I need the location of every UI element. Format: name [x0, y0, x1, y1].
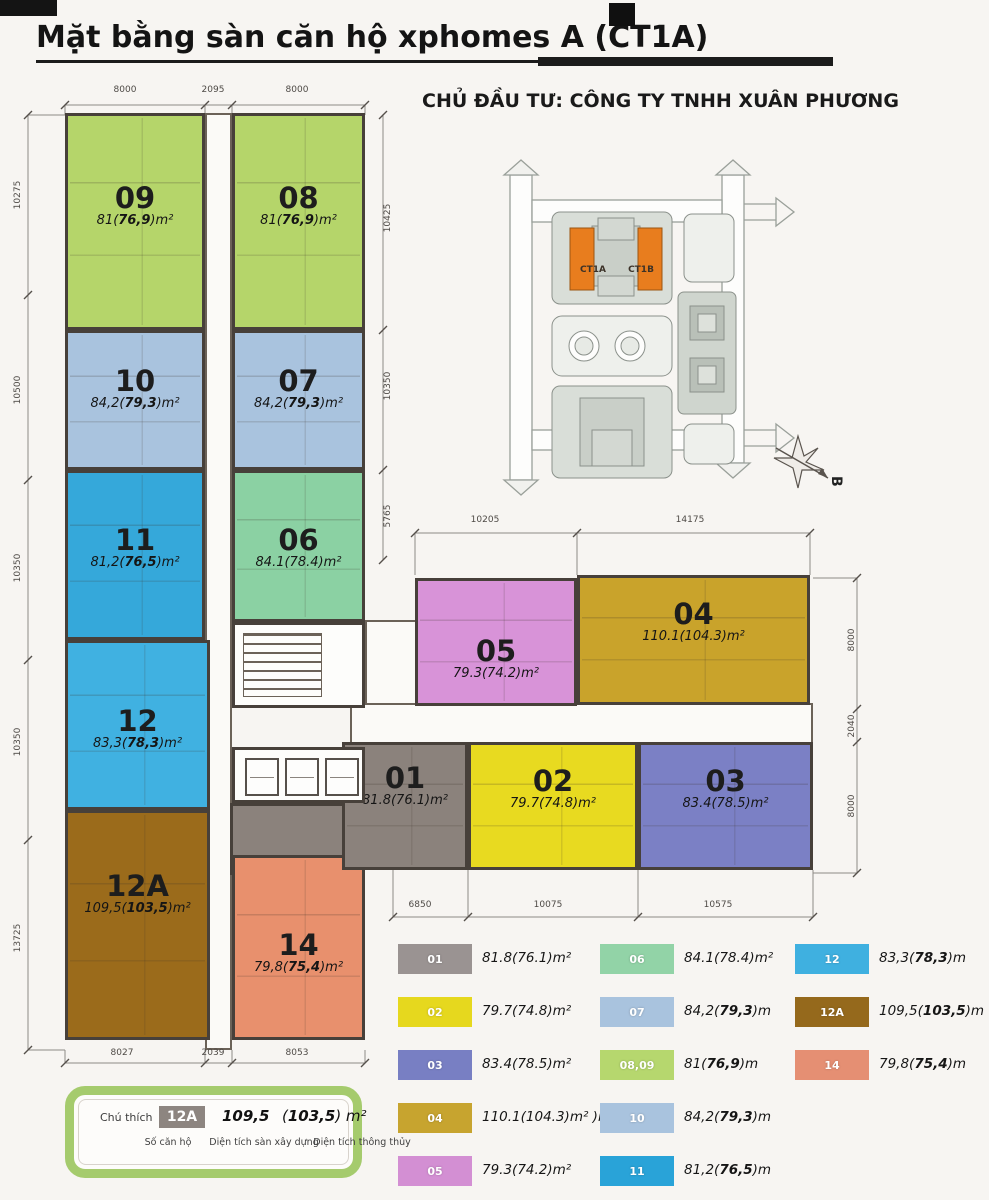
legend-swatch: 14 [795, 1050, 869, 1080]
apartment-number: 07 [235, 366, 362, 396]
site-plan: CT1A CT1B B [480, 130, 880, 510]
legend-suf: )m [948, 1056, 966, 1072]
area-pre: 79.7(74.8)m² [510, 796, 596, 811]
dimension-label: 10350 [383, 372, 393, 401]
apartment-label: 0981(76,9)m² [68, 183, 202, 228]
legend-net: 79,3 [719, 1003, 752, 1019]
note-caption-id: Số căn hộ [145, 1137, 192, 1148]
legend-pre: 110.1(104.3)m² )m² [482, 1109, 617, 1125]
dimension-label: 14175 [676, 515, 705, 525]
legend-pre: 79,8( [879, 1056, 914, 1072]
compass-north-label: B [828, 476, 844, 487]
apartment-10: 1084,2(79,3)m² [65, 330, 205, 470]
area-net: 76,9 [118, 213, 150, 228]
dimension-label: 10425 [383, 204, 393, 233]
legend-swatch: 04 [398, 1103, 472, 1133]
area-net: 78,3 [127, 736, 159, 751]
note-sample-swatch: 12A [159, 1106, 205, 1128]
apartment-04: 04110.1(104.3)m² [577, 575, 810, 705]
compass-north-icon [774, 436, 828, 488]
legend-pre: 83,3( [879, 950, 914, 966]
legend-swatch: 06 [600, 944, 674, 974]
floor-plan-page: Mặt bằng sàn căn hộ xphomes A (CT1A) CHỦ… [0, 0, 989, 1200]
note-caption-gross: Diện tích sàn xây dựng [209, 1137, 318, 1148]
dimension-label: 2095 [202, 85, 225, 95]
area-net: 103,5 [127, 901, 168, 916]
legend-label: 110.1(104.3)m² )m² [482, 1109, 617, 1125]
apartment-label: 12A109,5(103,5)m² [68, 871, 207, 916]
apartment-number: 12A [68, 871, 207, 901]
legend-net: 76,9 [706, 1056, 739, 1072]
legend-pre: 83.4(78.5)m² [482, 1056, 571, 1072]
apartment-number: 09 [68, 183, 202, 213]
apartment-label: 0684.1(78.4)m² [235, 525, 362, 570]
apartment-area: 110.1(104.3)m² [580, 629, 807, 644]
legend-label: 81.8(76.1)m² [482, 950, 571, 966]
apartment-area: 79.7(74.8)m² [471, 796, 635, 811]
legend-suf: )m [753, 1003, 771, 1019]
note-sample-gross: 109,5 [222, 1107, 269, 1125]
area-pre: 109,5( [84, 901, 126, 916]
area-pre: 81( [97, 213, 119, 228]
legend-pre: 81( [684, 1056, 706, 1072]
dimension-label: 8000 [847, 795, 857, 818]
legend-net: 75,4 [914, 1056, 947, 1072]
legend-swatch: 12 [795, 944, 869, 974]
legend-net: 78,3 [914, 950, 947, 966]
area-suf: )m² [320, 396, 343, 411]
area-suf: )m² [168, 901, 191, 916]
apartment-label: 0784,2(79,3)m² [235, 366, 362, 411]
legend-label: 84.1(78.4)m² [684, 950, 773, 966]
apartment-number: 08 [235, 183, 362, 213]
dimension-label: 10075 [534, 900, 563, 910]
dimension-label: 10350 [13, 554, 23, 583]
area-pre: 81.8(76.1)m² [362, 793, 448, 808]
apartment-number: 05 [418, 636, 574, 666]
area-net: 76,5 [125, 555, 157, 570]
area-suf: )m² [320, 960, 343, 975]
plan-block-stair-core [232, 622, 365, 708]
apartment-number: 14 [235, 930, 362, 960]
plan-block-wing-corridor [350, 703, 813, 745]
apartment-12A: 12A109,5(103,5)m² [65, 810, 210, 1040]
area-net: 76,9 [282, 213, 314, 228]
dimension-label: 2040 [847, 715, 857, 738]
apartment-08: 0881(76,9)m² [232, 113, 365, 330]
apartment-14: 1479,8(75,4)m² [232, 855, 365, 1040]
dimension-label: 10205 [471, 515, 500, 525]
legend-pre: 79.7(74.8)m² [482, 1003, 571, 1019]
dimension-label: 13725 [13, 924, 23, 953]
legend-suf: )m [966, 1003, 984, 1019]
area-suf: )m² [314, 213, 337, 228]
dimension-label: 10575 [704, 900, 733, 910]
apartment-05: 0579.3(74.2)m² [415, 578, 577, 706]
area-suf: )m² [157, 555, 180, 570]
area-pre: 84,2( [90, 396, 124, 411]
area-pre: 81( [260, 213, 282, 228]
apartment-label: 1084,2(79,3)m² [68, 366, 202, 411]
area-pre: 79,8( [254, 960, 288, 975]
apartment-label: 0579.3(74.2)m² [418, 636, 574, 681]
apartment-area: 79,8(75,4)m² [235, 960, 362, 975]
apartment-number: 12 [68, 706, 207, 736]
plan-block-lift-core [232, 747, 365, 803]
legend-swatch: 12A [795, 997, 869, 1027]
area-net: 75,4 [288, 960, 320, 975]
legend-swatch: 03 [398, 1050, 472, 1080]
legend-label: 84,2(79,3)m [684, 1003, 771, 1019]
legend-pre: 84,2( [684, 1109, 719, 1125]
apartment-09: 0981(76,9)m² [65, 113, 205, 330]
legend-suf: )m [753, 1109, 771, 1125]
elevator-icon [285, 758, 319, 796]
legend-swatch: 01 [398, 944, 472, 974]
legend-pre: 109,5( [879, 1003, 923, 1019]
dimension-label: 8000 [847, 629, 857, 652]
legend-label: 84,2(79,3)m [684, 1109, 771, 1125]
apartment-12: 1283,3(78,3)m² [65, 640, 210, 810]
apartment-area: 83.4(78.5)m² [641, 796, 810, 811]
legend-swatch: 05 [398, 1156, 472, 1186]
apartment-02: 0279.7(74.8)m² [468, 742, 638, 870]
elevator-icon [325, 758, 359, 796]
dimension-label: 10275 [13, 181, 23, 210]
apartment-label: 0279.7(74.8)m² [471, 766, 635, 811]
stairs-icon [243, 633, 322, 697]
apartment-area: 81(76,9)m² [68, 213, 202, 228]
area-suf: )m² [157, 396, 180, 411]
legend-suf: )m [948, 950, 966, 966]
legend-pre: 81,2( [684, 1162, 719, 1178]
area-net: 79,3 [288, 396, 320, 411]
apartment-area: 81(76,9)m² [235, 213, 362, 228]
legend-suf: )m [740, 1056, 758, 1072]
area-pre: 79.3(74.2)m² [453, 666, 539, 681]
dimension-label: 5765 [383, 505, 393, 528]
apartment-number: 02 [471, 766, 635, 796]
legend-swatch: 07 [600, 997, 674, 1027]
apartment-label: 0383.4(78.5)m² [641, 766, 810, 811]
site-building-ct1a [570, 228, 594, 290]
area-pre: 81,2( [90, 555, 124, 570]
legend-label: 83.4(78.5)m² [482, 1056, 571, 1072]
dimension-label: 8000 [114, 85, 137, 95]
apartment-area: 79.3(74.2)m² [418, 666, 574, 681]
legend-label: 79.3(74.2)m² [482, 1162, 571, 1178]
apartment-area: 83,3(78,3)m² [68, 736, 207, 751]
area-pre: 83.4(78.5)m² [683, 796, 769, 811]
area-pre: 110.1(104.3)m² [642, 629, 744, 644]
legend-label: 81,2(76,5)m [684, 1162, 771, 1178]
legend-swatch: 10 [600, 1103, 674, 1133]
dimension-label: 8027 [111, 1048, 134, 1058]
apartment-11: 1181,2(76,5)m² [65, 470, 205, 640]
legend-net: 76,5 [719, 1162, 752, 1178]
legend-swatch: 11 [600, 1156, 674, 1186]
legend-pre: 81.8(76.1)m² [482, 950, 571, 966]
apartment-07: 0784,2(79,3)m² [232, 330, 365, 470]
elevator-icon [245, 758, 279, 796]
area-net: 79,3 [125, 396, 157, 411]
apartment-area: 84,2(79,3)m² [235, 396, 362, 411]
legend-net: 103,5 [923, 1003, 966, 1019]
legend-label: 83,3(78,3)m [879, 950, 966, 966]
legend-pre: 84,2( [684, 1003, 719, 1019]
legend-suf: )m [753, 1162, 771, 1178]
apartment-number: 11 [68, 525, 202, 555]
site-building-ct1b [638, 228, 662, 290]
legend-note-box: Chú thích 12A 109,5 (103,5) m² Số căn hộ… [65, 1086, 362, 1178]
apartment-area: 81,2(76,5)m² [68, 555, 202, 570]
apartment-label: 1181,2(76,5)m² [68, 525, 202, 570]
apartment-06: 0684.1(78.4)m² [232, 470, 365, 622]
dimension-label: 10350 [13, 728, 23, 757]
dimension-label: 6850 [409, 900, 432, 910]
area-pre: 84,2( [254, 396, 288, 411]
apartment-number: 10 [68, 366, 202, 396]
area-suf: )m² [159, 736, 182, 751]
apartment-03: 0383.4(78.5)m² [638, 742, 813, 870]
apartment-number: 04 [580, 599, 807, 629]
dimension-label: 8000 [286, 85, 309, 95]
apartment-number: 06 [235, 525, 362, 555]
apartment-label: 0881(76,9)m² [235, 183, 362, 228]
apartment-number: 03 [641, 766, 810, 796]
site-label-ct1a: CT1A [580, 265, 606, 275]
dimension-label: 8053 [286, 1048, 309, 1058]
apartment-label: 1479,8(75,4)m² [235, 930, 362, 975]
note-sample-net: (103,5) m² [282, 1107, 367, 1125]
area-suf: )m² [150, 213, 173, 228]
apartment-area: 109,5(103,5)m² [68, 901, 207, 916]
legend-pre: 84.1(78.4)m² [684, 950, 773, 966]
legend-pre: 79.3(74.2)m² [482, 1162, 571, 1178]
note-caption-net: Diện tích thông thủy [313, 1137, 411, 1148]
apartment-area: 84,2(79,3)m² [68, 396, 202, 411]
area-pre: 84.1(78.4)m² [256, 555, 342, 570]
site-label-ct1b: CT1B [628, 265, 654, 275]
legend-label: 109,5(103,5)m [879, 1003, 984, 1019]
note-label: Chú thích [100, 1111, 152, 1124]
dimension-label: 2039 [202, 1048, 225, 1058]
apartment-area: 84.1(78.4)m² [235, 555, 362, 570]
legend-label: 79,8(75,4)m [879, 1056, 966, 1072]
legend-swatch: 08,09 [600, 1050, 674, 1080]
legend-label: 81(76,9)m [684, 1056, 758, 1072]
legend-swatch: 02 [398, 997, 472, 1027]
legend-label: 79.7(74.8)m² [482, 1003, 571, 1019]
dimension-label: 10500 [13, 376, 23, 405]
apartment-label: 04110.1(104.3)m² [580, 599, 807, 644]
legend-net: 79,3 [719, 1109, 752, 1125]
area-pre: 83,3( [93, 736, 127, 751]
apartment-label: 1283,3(78,3)m² [68, 706, 207, 751]
